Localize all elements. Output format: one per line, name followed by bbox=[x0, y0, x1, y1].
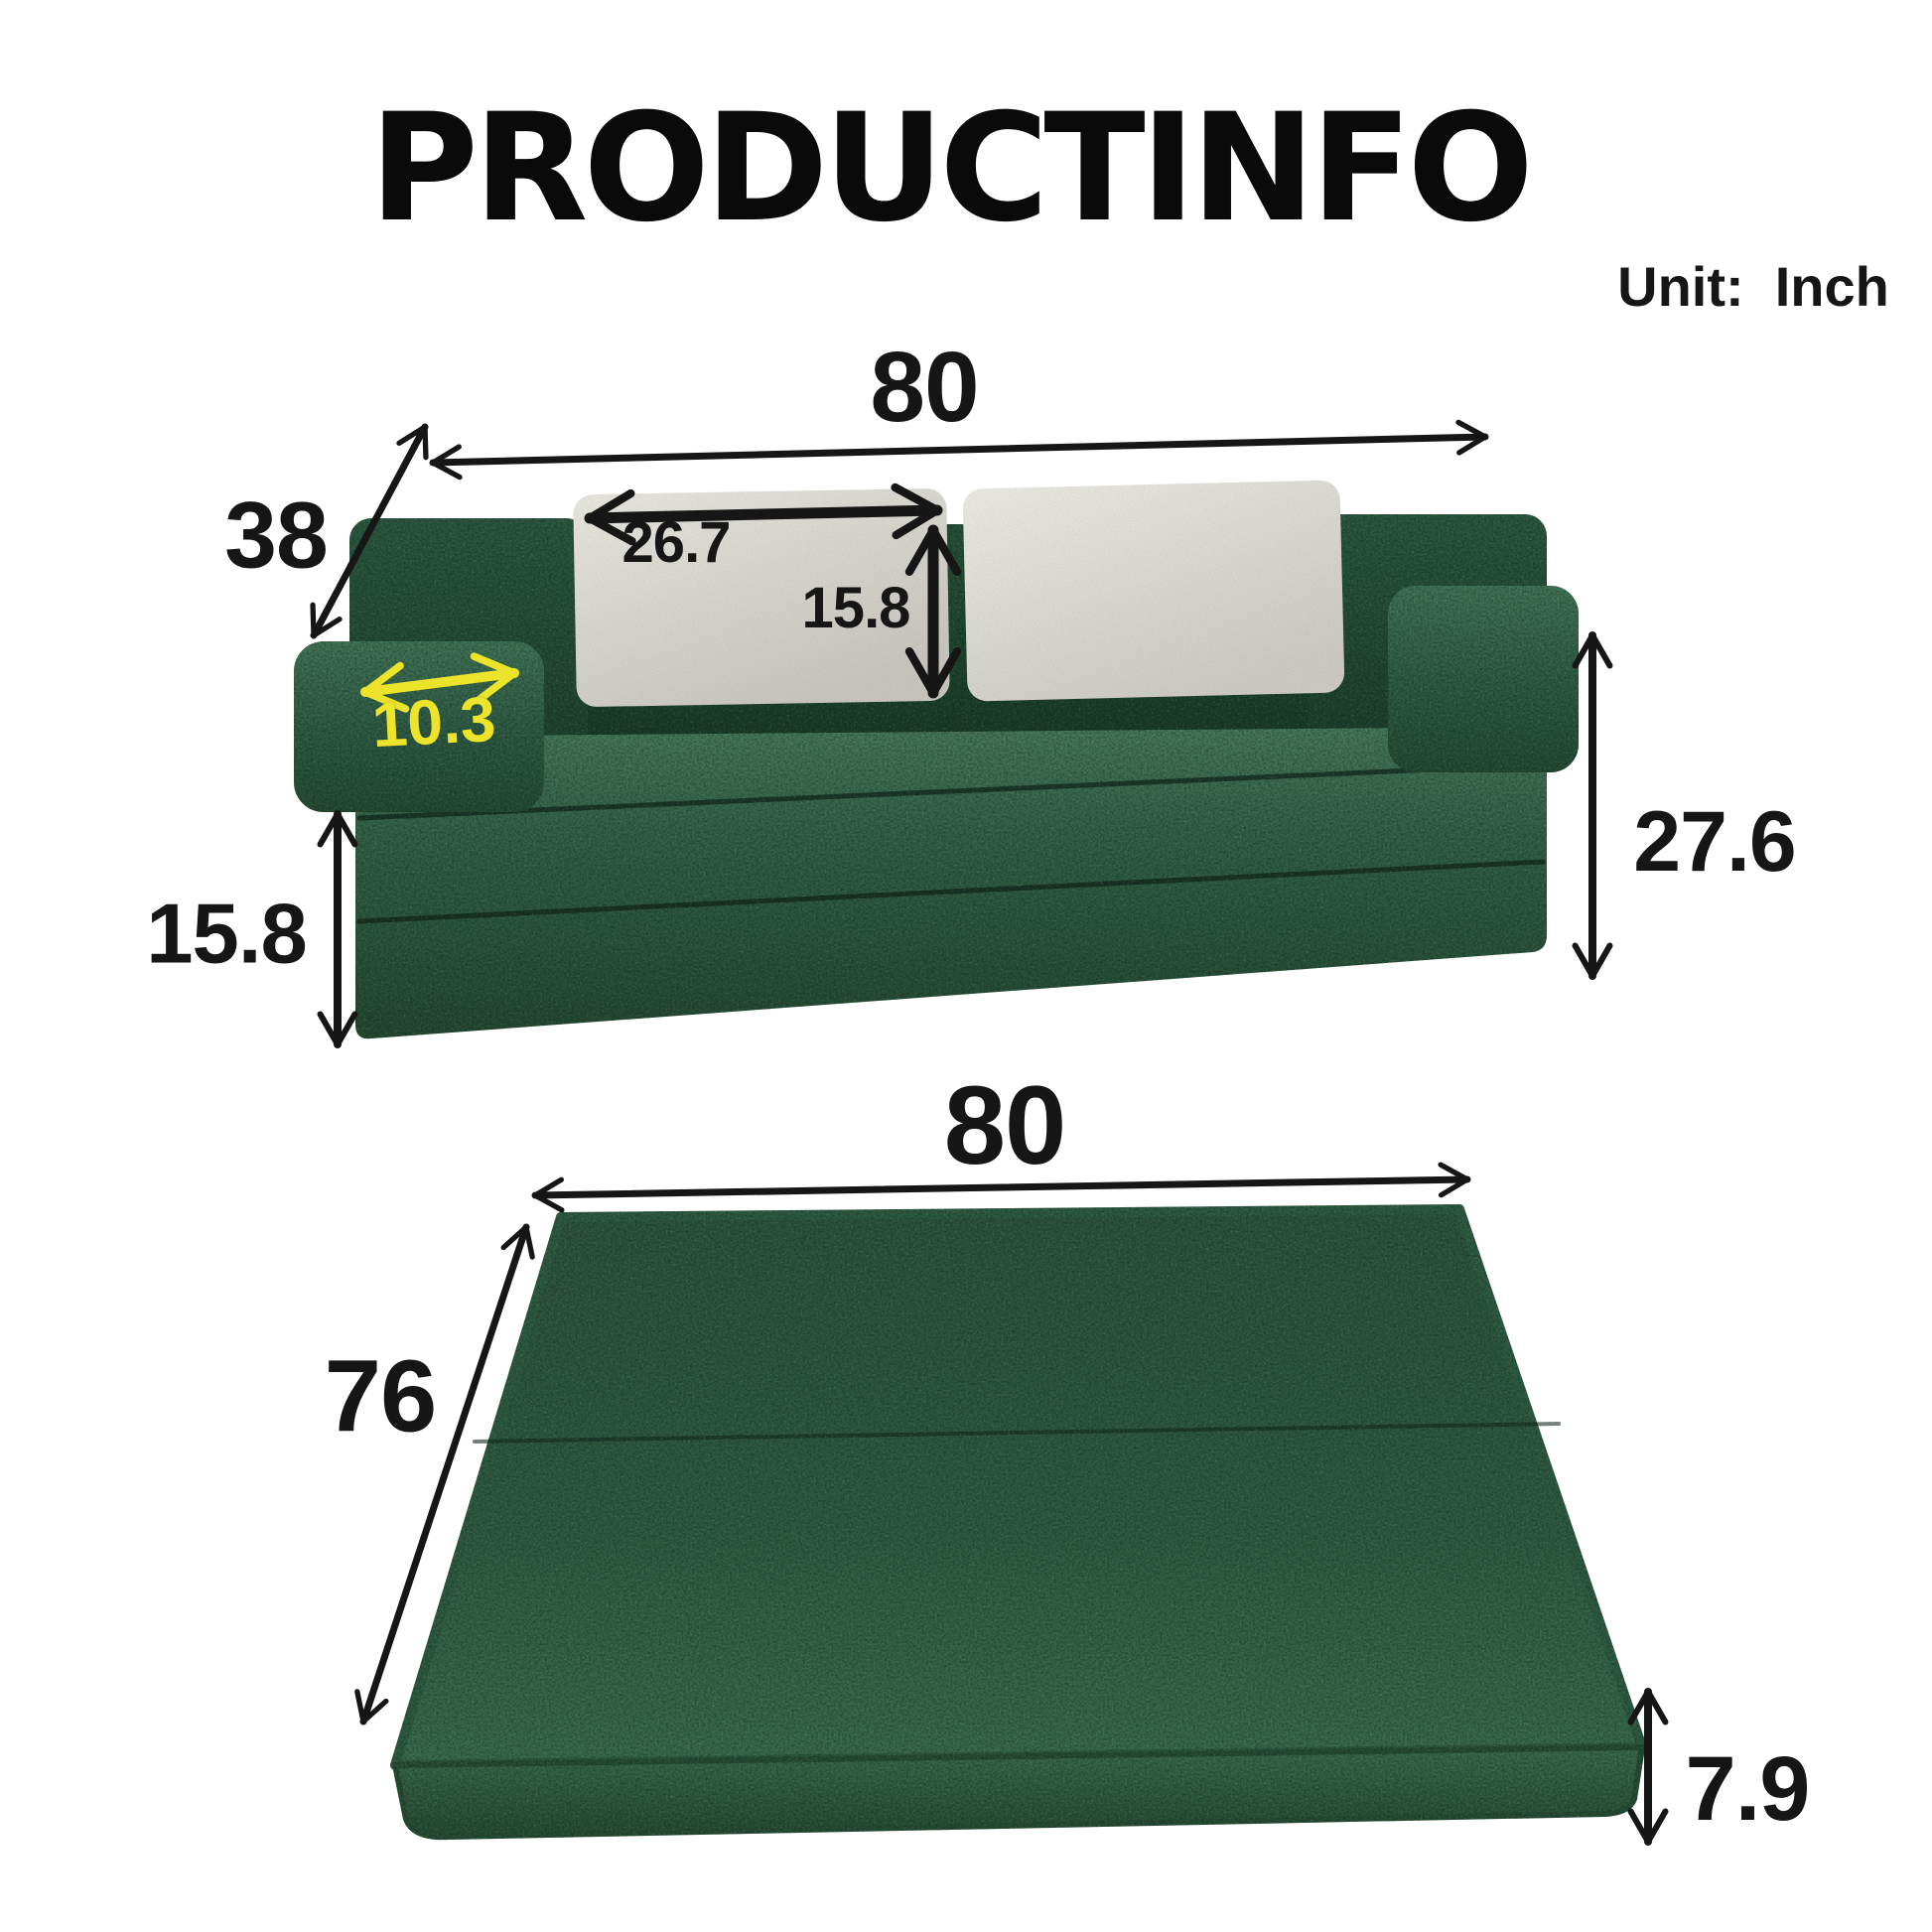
right-back-pillow bbox=[962, 480, 1344, 701]
page-title: PRODUCTINFO bbox=[369, 94, 1529, 243]
pillow-width-label: 26.7 bbox=[622, 514, 731, 572]
sofa-right-armrest bbox=[1388, 586, 1579, 772]
mattress-length-label: 76 bbox=[325, 1345, 437, 1448]
sofa-depth-label: 38 bbox=[224, 489, 328, 584]
pillow-height-label: 15.8 bbox=[802, 580, 910, 637]
product-info-sheet: PRODUCTINFO Unit: Inch 80 38 26.7 15.8 1… bbox=[0, 0, 1932, 1932]
sofa-width-label: 80 bbox=[870, 338, 978, 437]
mattress-width-label: 80 bbox=[944, 1070, 1066, 1181]
overall-height-label: 27.6 bbox=[1633, 799, 1795, 885]
unit-note: Unit: Inch bbox=[1617, 259, 1889, 315]
mattress-top-surface bbox=[395, 1209, 1642, 1765]
folded-layers-height-label: 15.8 bbox=[146, 893, 306, 977]
mattress-group bbox=[395, 1209, 1642, 1837]
mattress-thickness-label: 7.9 bbox=[1686, 1743, 1810, 1835]
mattress-front-face bbox=[395, 1747, 1642, 1837]
armrest-width-label: 10.3 bbox=[370, 687, 497, 757]
